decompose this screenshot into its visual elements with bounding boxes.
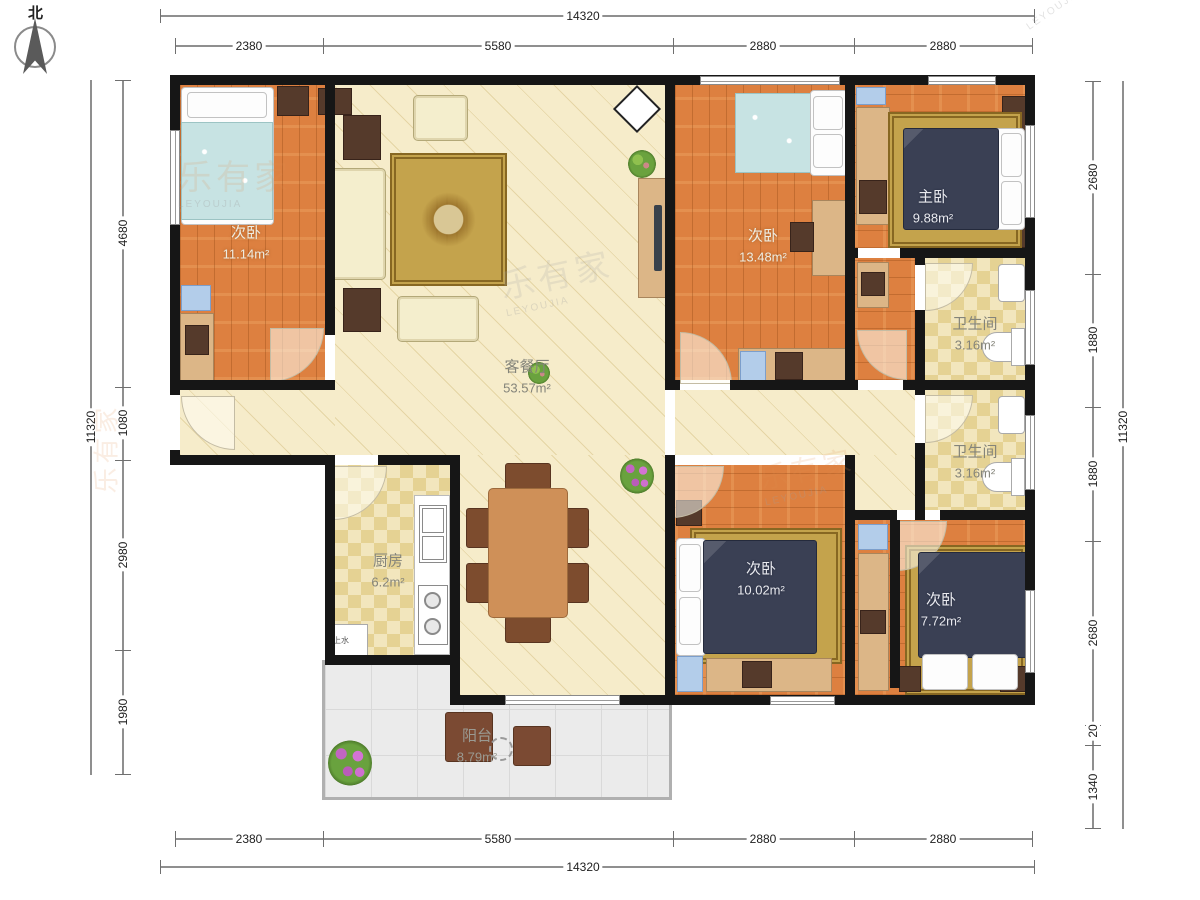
- room-area: 9.88m²: [913, 209, 953, 229]
- bath2-sink: [998, 396, 1025, 434]
- side-unit: [858, 524, 888, 550]
- dim-label: 2880: [927, 832, 960, 846]
- desk: [812, 200, 848, 276]
- wall: [845, 75, 855, 390]
- nightstand: [856, 87, 886, 105]
- room-label-kitchen: 厨房 6.2m²: [371, 549, 404, 592]
- dining-chair: [505, 616, 551, 643]
- room-area: 53.57m²: [503, 379, 551, 399]
- wall: [170, 75, 180, 130]
- room-name: 次卧: [737, 557, 785, 580]
- dim-tick: [160, 9, 161, 23]
- dim-tick: [115, 774, 131, 775]
- room-label-bedroom-bl: 次卧 10.02m²: [737, 557, 785, 600]
- sink-basin: [422, 536, 444, 560]
- bed-pillow: [1001, 133, 1022, 177]
- dim-tick: [854, 38, 855, 54]
- room-label-living: 客餐厅 53.57m²: [503, 355, 551, 398]
- nightstand: [899, 666, 921, 692]
- wall: [915, 310, 925, 390]
- wall: [850, 248, 858, 258]
- wall: [450, 695, 505, 705]
- dining-table: [488, 488, 568, 618]
- desk-item: [742, 661, 772, 688]
- stove-burner: [424, 592, 441, 609]
- dim-tick: [160, 860, 161, 874]
- room-area: 13.48m²: [739, 248, 787, 268]
- bed-blanket: [181, 122, 273, 220]
- wall: [378, 455, 460, 465]
- side-table: [343, 288, 381, 332]
- dim-tick: [673, 38, 674, 54]
- dim-tick: [175, 831, 176, 847]
- room-area: 7.72m²: [921, 612, 961, 632]
- room-label-bedroom-tm: 次卧 13.48m²: [739, 224, 787, 267]
- wall: [325, 655, 460, 665]
- room-label-balcony: 阳台 8.79m²: [457, 724, 497, 767]
- room-label-bath2: 卫生间 3.16m²: [952, 440, 997, 483]
- wall: [1025, 490, 1035, 590]
- dining-chair: [505, 463, 551, 490]
- table-item: [775, 352, 803, 380]
- dim-line: [1122, 81, 1124, 829]
- dim-tick: [175, 38, 176, 54]
- living-rug: [390, 153, 507, 286]
- room-name: 卫生间: [952, 440, 997, 463]
- room-label-master: 主卧 9.88m²: [913, 185, 953, 228]
- corridor-floor-2: [855, 455, 915, 510]
- wall: [170, 455, 332, 465]
- window: [1025, 125, 1035, 218]
- dim-label: 5580: [482, 832, 515, 846]
- dim-tick: [115, 387, 131, 388]
- wall: [170, 225, 180, 395]
- dim-label: 2880: [747, 832, 780, 846]
- dim-label-bottom-total: 14320: [563, 860, 602, 874]
- room-area: 10.02m²: [737, 581, 785, 601]
- bed-pillow: [813, 96, 843, 130]
- wall: [730, 380, 858, 390]
- dim-label: 1080: [116, 407, 130, 440]
- desk-chair: [790, 222, 814, 252]
- dim-label: 1340: [1086, 771, 1100, 804]
- wall: [890, 520, 900, 688]
- wall: [1025, 218, 1035, 290]
- dim-label-left-total: 11320: [84, 408, 98, 446]
- bed-pillow: [187, 92, 267, 118]
- sink-basin: [422, 508, 444, 533]
- room-area: 6.2m²: [371, 573, 404, 593]
- dim-tick: [1085, 81, 1101, 82]
- dim-label: 2380: [233, 832, 266, 846]
- bed-blanket: [735, 93, 813, 173]
- dim-label: 2980: [116, 539, 130, 572]
- dim-label: 2680: [1086, 161, 1100, 194]
- dim-label: 4680: [116, 217, 130, 250]
- stove-burner: [424, 618, 441, 635]
- plant: [620, 458, 654, 494]
- window: [928, 76, 996, 85]
- dim-label: 2880: [927, 39, 960, 53]
- wall: [665, 455, 675, 705]
- dim-tick: [673, 831, 674, 847]
- wall: [940, 510, 1035, 520]
- dim-label: 1980: [116, 696, 130, 729]
- dim-tick: [1085, 541, 1101, 542]
- dim-label: 2680: [1086, 617, 1100, 650]
- tv-stand: [638, 178, 668, 298]
- wall: [170, 75, 1035, 85]
- dim-label: 1880: [1086, 458, 1100, 491]
- bath1-toilet-tank: [1011, 328, 1025, 366]
- room-label-bedroom-br: 次卧 7.72m²: [921, 588, 961, 631]
- dim-tick: [1032, 38, 1033, 54]
- window: [700, 76, 840, 85]
- room-area: 3.16m²: [952, 464, 997, 484]
- wall: [915, 443, 925, 520]
- dim-tick: [1034, 860, 1035, 874]
- wall: [915, 258, 925, 265]
- plant: [628, 150, 656, 178]
- dim-tick: [115, 460, 131, 461]
- side-unit: [677, 656, 703, 692]
- side-unit: [181, 285, 211, 311]
- wall: [325, 75, 335, 335]
- dim-tick: [323, 38, 324, 54]
- wall: [665, 695, 1035, 705]
- balcony-sliding-door: [505, 695, 620, 705]
- dim-label: 1880: [1086, 324, 1100, 357]
- bed-pillow: [679, 544, 701, 592]
- compass: 北: [8, 2, 68, 74]
- bed-pillow: [679, 597, 701, 645]
- bed-pillow: [972, 654, 1018, 690]
- wall: [665, 75, 675, 390]
- dim-tick: [1085, 745, 1101, 746]
- dim-tick: [323, 831, 324, 847]
- wardrobe-item: [859, 180, 887, 214]
- room-area: 3.16m²: [952, 336, 997, 356]
- dim-tick: [1085, 274, 1101, 275]
- room-name: 阳台: [457, 724, 497, 747]
- bath1-sink: [998, 264, 1025, 302]
- utility-label: 上水: [333, 635, 349, 646]
- room-name: 客餐厅: [503, 355, 551, 378]
- window: [1025, 290, 1035, 365]
- room-label-bedroom-tl: 次卧 11.14m²: [223, 221, 270, 264]
- dim-tick: [1085, 407, 1101, 408]
- wall: [845, 455, 855, 705]
- room-name: 厨房: [371, 549, 404, 572]
- desk-item: [860, 610, 886, 634]
- window: [770, 696, 835, 705]
- wall: [1025, 365, 1035, 415]
- bath2-toilet-tank: [1011, 458, 1025, 496]
- cabinet: [318, 88, 352, 115]
- corridor-floor: [675, 390, 915, 455]
- dim-label-top-total: 14320: [563, 9, 602, 23]
- dim-tick: [1032, 831, 1033, 847]
- wall: [855, 510, 897, 520]
- room-name: 次卧: [921, 588, 961, 611]
- sofa-main: [330, 168, 386, 280]
- wall: [915, 380, 1035, 390]
- balcony-cabinet: [513, 726, 551, 766]
- nightstand: [277, 86, 309, 116]
- side-unit: [740, 351, 766, 381]
- wall: [1025, 673, 1035, 705]
- room-name: 次卧: [223, 221, 270, 244]
- dim-tick: [115, 80, 131, 81]
- wall: [1025, 75, 1035, 125]
- window: [1025, 590, 1035, 673]
- dim-line: [175, 45, 1033, 47]
- dim-tick: [115, 650, 131, 651]
- cabinet-item: [185, 325, 209, 355]
- dim-label: 5580: [482, 39, 515, 53]
- floor-plan: 上水: [0, 0, 1200, 900]
- wall: [915, 390, 925, 395]
- room-name: 主卧: [913, 185, 953, 208]
- dim-tick: [1034, 9, 1035, 23]
- tv: [654, 205, 662, 271]
- window: [1025, 415, 1035, 490]
- room-area: 11.14m²: [223, 245, 270, 265]
- wall: [900, 248, 1035, 258]
- bed-pillow: [922, 654, 968, 690]
- window: [170, 130, 180, 225]
- room-area: 8.79m²: [457, 748, 497, 768]
- wall: [325, 455, 335, 665]
- bed-pillow: [813, 134, 843, 168]
- dim-label: 20: [1086, 721, 1100, 740]
- balcony-plant: [328, 740, 372, 786]
- dim-label-right-total: 11320: [1116, 408, 1130, 446]
- wall: [665, 380, 680, 390]
- armchair: [413, 95, 468, 141]
- wall: [170, 380, 335, 390]
- room-name: 卫生间: [952, 312, 997, 335]
- dim-label: 2880: [747, 39, 780, 53]
- wall: [450, 455, 460, 705]
- room-label-bath1: 卫生间 3.16m²: [952, 312, 997, 355]
- room-name: 次卧: [739, 224, 787, 247]
- bed-pillow: [1001, 181, 1022, 225]
- compass-north-label: 北: [28, 2, 43, 23]
- dim-label: 2380: [233, 39, 266, 53]
- side-table: [343, 115, 381, 160]
- dim-tick: [854, 831, 855, 847]
- dim-line: [175, 838, 1033, 840]
- sofa-2: [397, 296, 479, 342]
- dim-tick: [1085, 828, 1101, 829]
- hall-item: [861, 272, 885, 296]
